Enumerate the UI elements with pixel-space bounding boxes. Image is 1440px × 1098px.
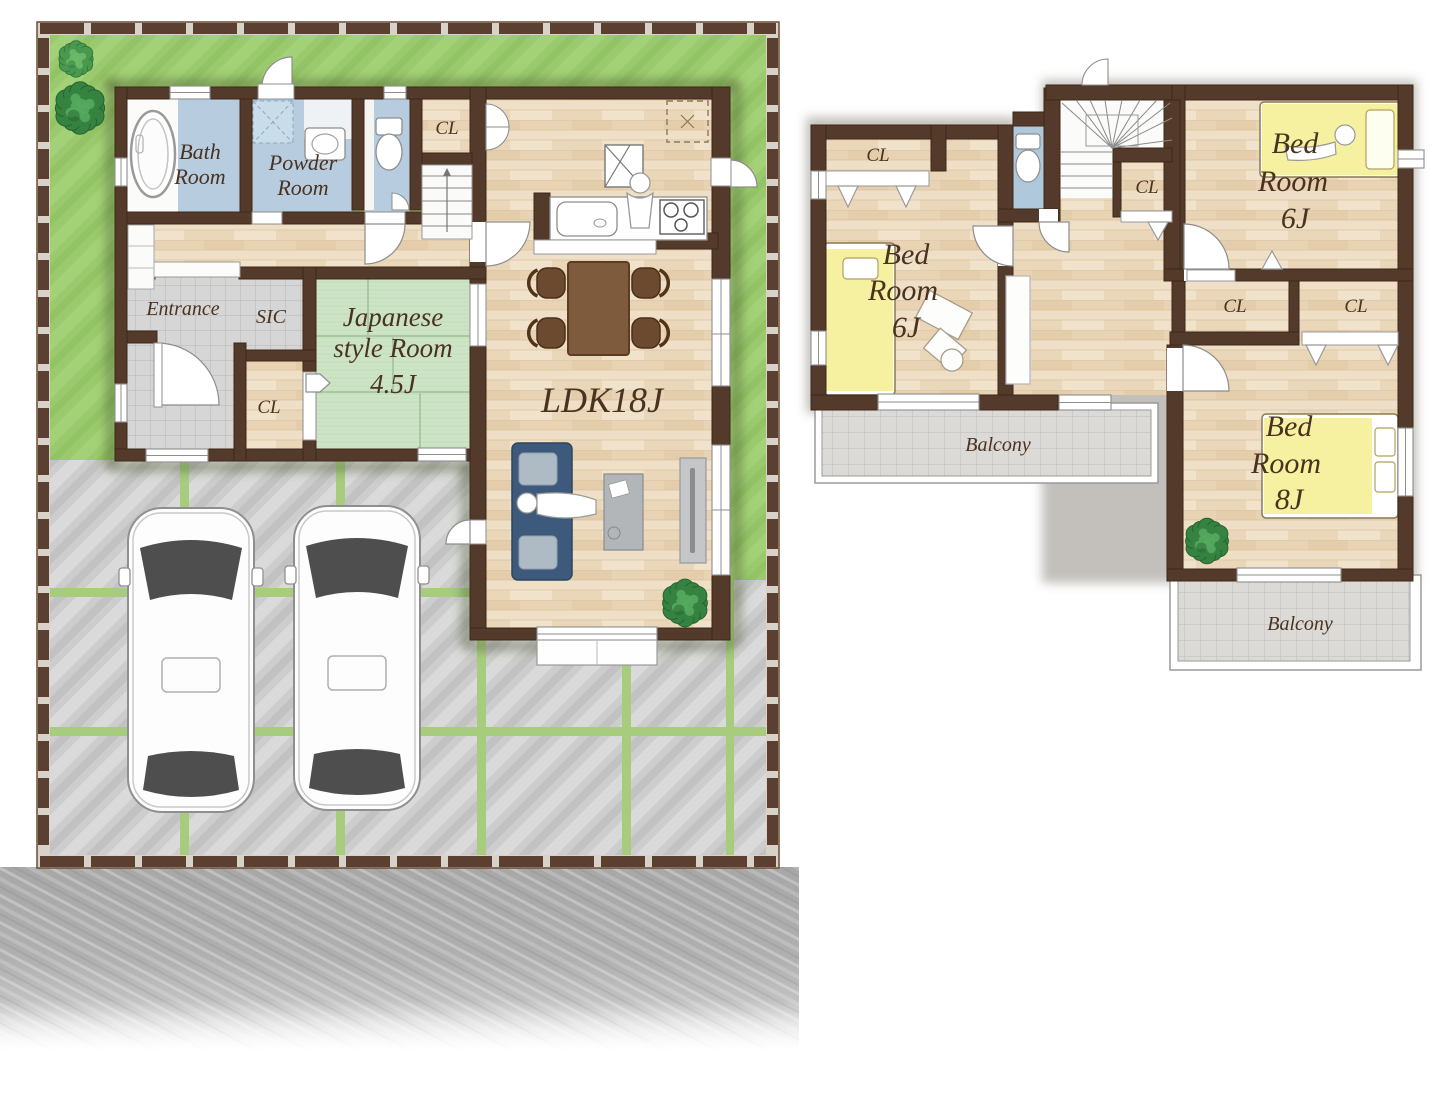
- svg-text:Room: Room: [1257, 165, 1328, 198]
- svg-text:CL: CL: [435, 118, 458, 139]
- svg-text:Room: Room: [276, 175, 328, 200]
- svg-text:Bed: Bed: [1266, 410, 1314, 443]
- svg-text:Room: Room: [173, 164, 225, 189]
- svg-text:Entrance: Entrance: [145, 298, 219, 320]
- svg-text:Balcony: Balcony: [965, 434, 1031, 456]
- svg-text:CL: CL: [257, 397, 280, 418]
- svg-text:Bed: Bed: [883, 238, 931, 271]
- svg-text:6J: 6J: [1281, 202, 1311, 235]
- svg-text:Room: Room: [1250, 447, 1321, 480]
- svg-text:Powder: Powder: [268, 150, 338, 175]
- svg-text:Balcony: Balcony: [1267, 613, 1333, 635]
- svg-text:Japanese: Japanese: [343, 302, 443, 332]
- svg-text:CL: CL: [1344, 296, 1367, 317]
- svg-text:4.5J: 4.5J: [370, 369, 418, 399]
- svg-text:CL: CL: [1135, 177, 1158, 198]
- svg-text:SIC: SIC: [256, 306, 287, 328]
- svg-text:style Room: style Room: [333, 333, 452, 363]
- svg-text:6J: 6J: [892, 311, 922, 344]
- svg-text:Bath: Bath: [179, 139, 221, 164]
- svg-text:LDK18J: LDK18J: [540, 380, 665, 420]
- svg-text:CL: CL: [1223, 296, 1246, 317]
- svg-text:CL: CL: [866, 145, 889, 166]
- svg-text:Bed: Bed: [1272, 127, 1320, 160]
- svg-text:8J: 8J: [1275, 483, 1305, 516]
- svg-text:Room: Room: [867, 274, 938, 307]
